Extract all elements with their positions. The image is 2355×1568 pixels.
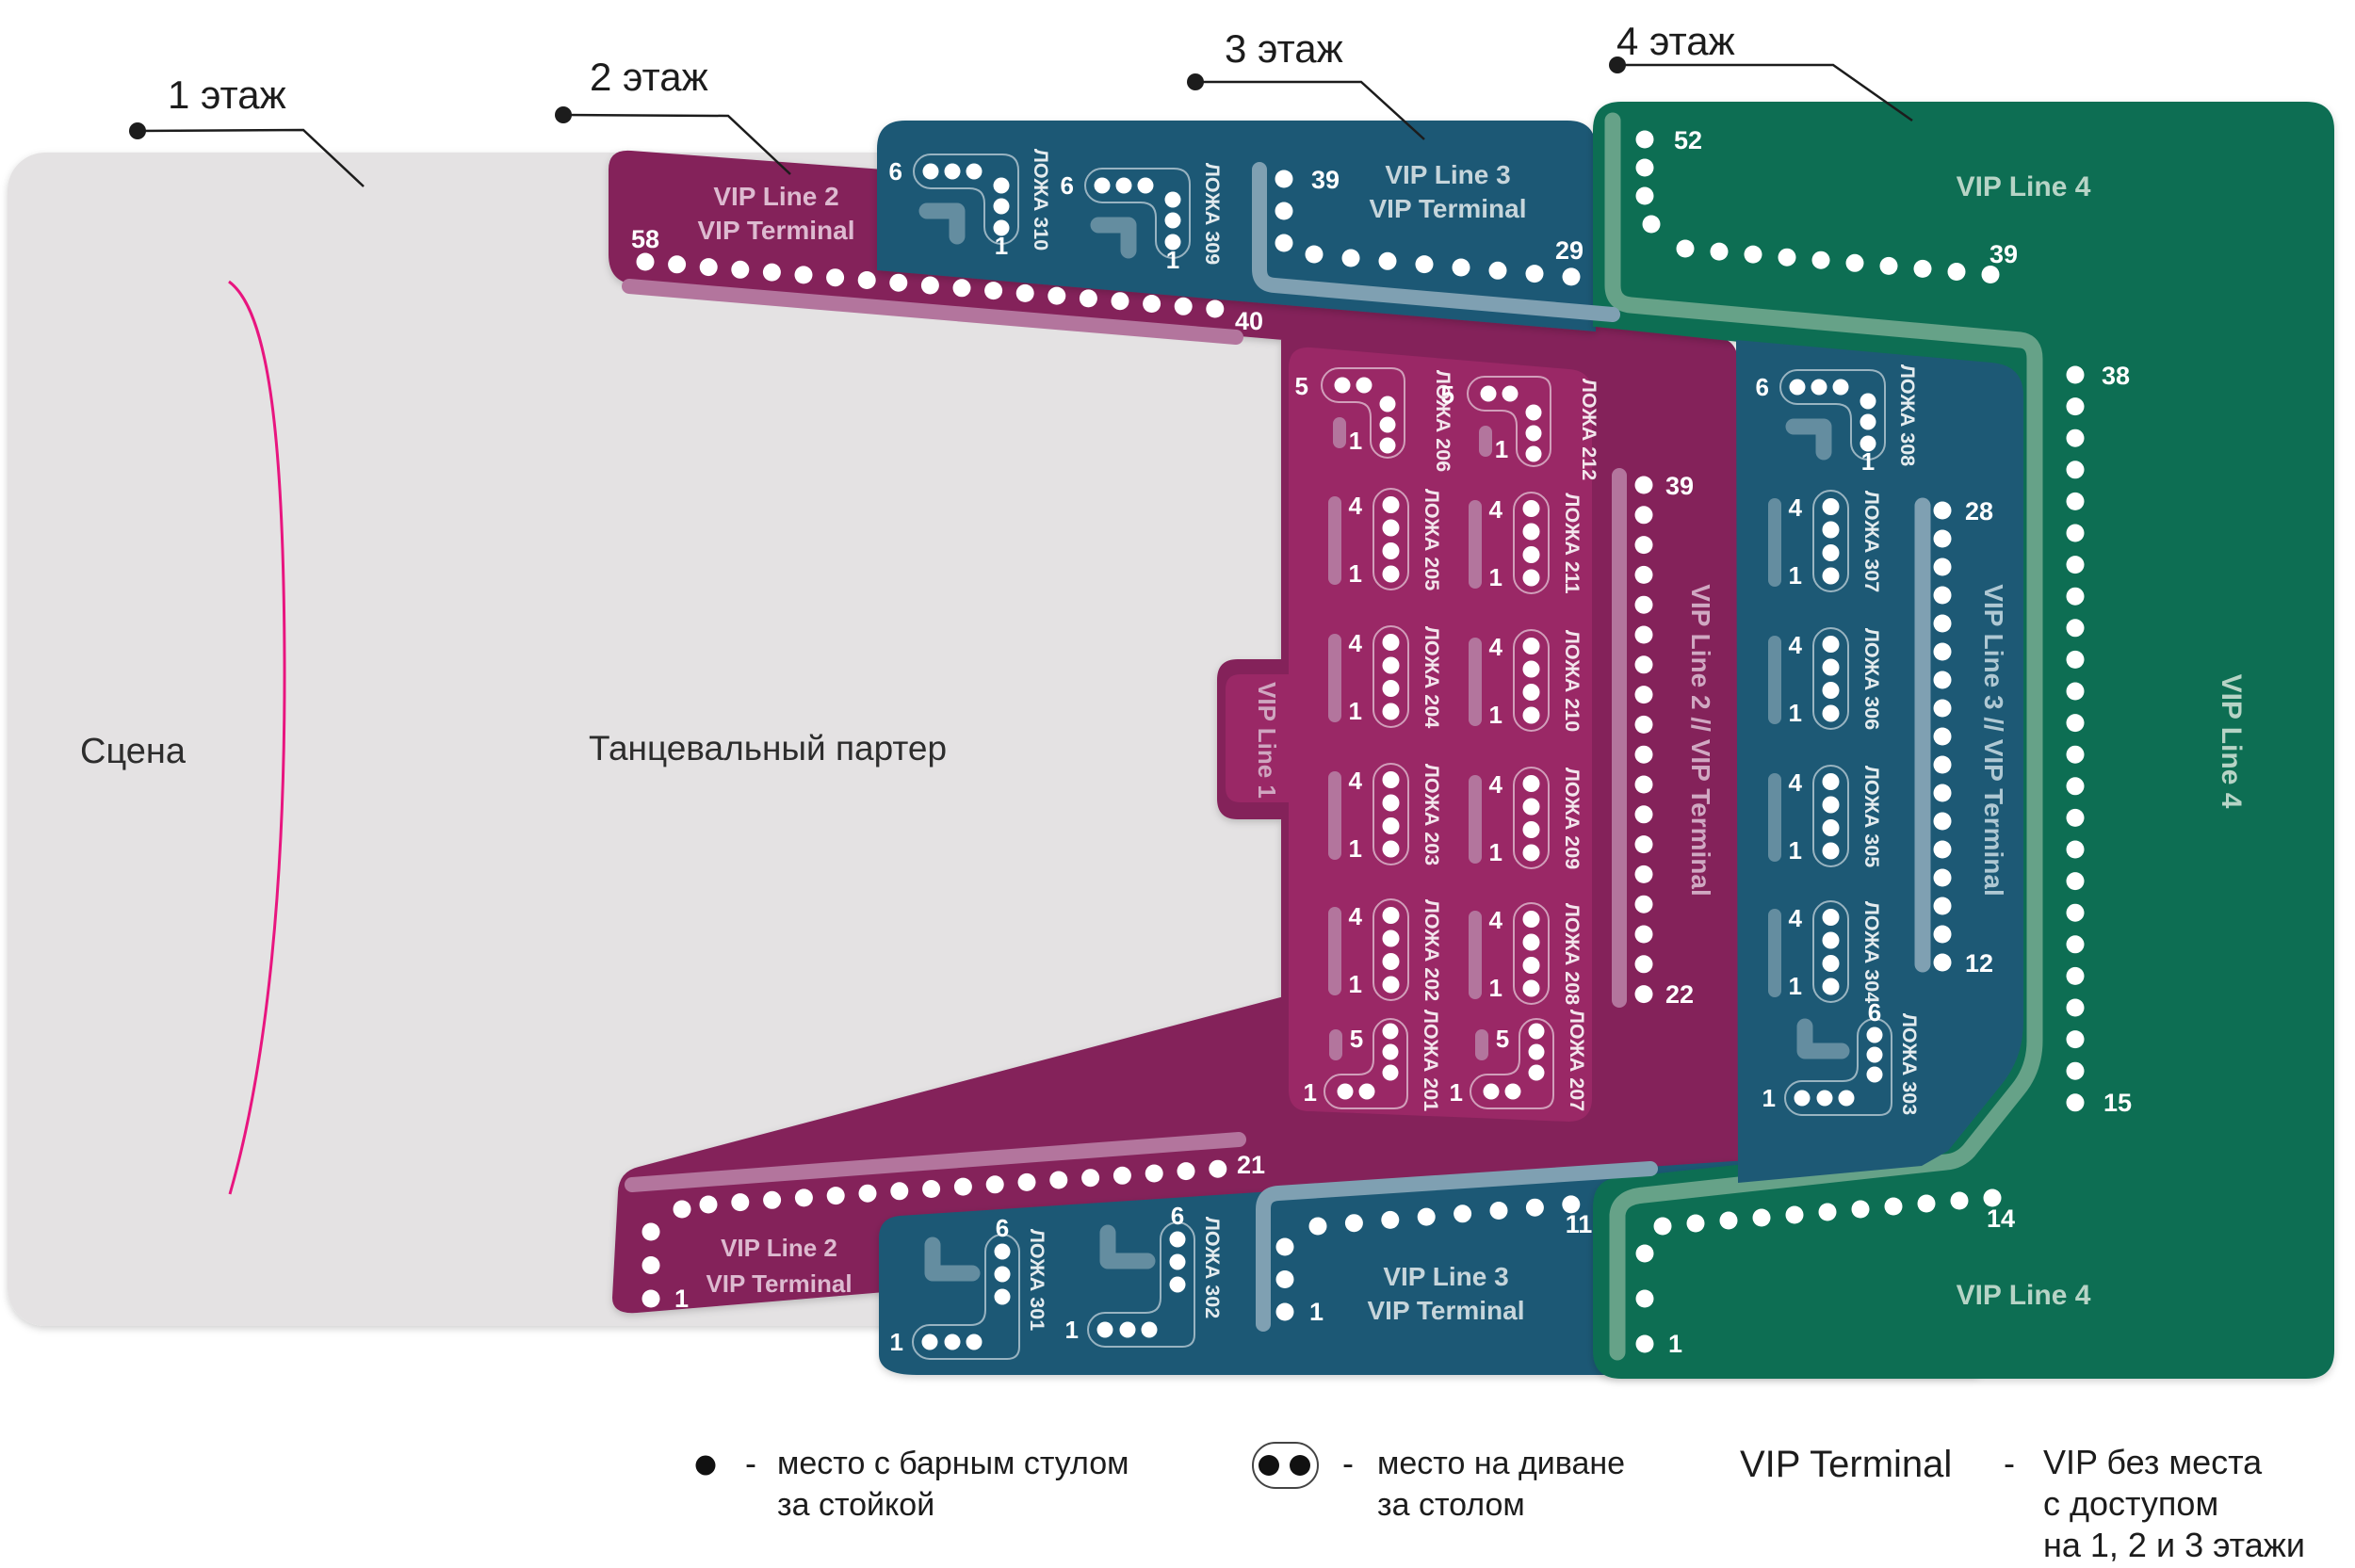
svg-text:за стойкой: за стойкой <box>777 1487 934 1523</box>
svg-text:ЛОЖА 302: ЛОЖА 302 <box>1201 1217 1224 1318</box>
svg-text:ЛОЖА 305: ЛОЖА 305 <box>1860 766 1883 867</box>
svg-text:ЛОЖА 307: ЛОЖА 307 <box>1860 491 1883 592</box>
svg-text:1: 1 <box>1789 561 1802 590</box>
svg-text:ЛОЖА 304: ЛОЖА 304 <box>1860 901 1883 1003</box>
svg-text:3 этаж: 3 этаж <box>1225 26 1343 71</box>
svg-text:6: 6 <box>1061 171 1074 200</box>
svg-text:ЛОЖА 303: ЛОЖА 303 <box>1898 1013 1921 1115</box>
svg-text:6: 6 <box>889 157 902 186</box>
svg-text:VIP Line 3: VIP Line 3 <box>1385 160 1510 189</box>
svg-text:5: 5 <box>1350 1025 1363 1053</box>
svg-text:VIP Line 4: VIP Line 4 <box>1957 171 2091 202</box>
svg-text:4: 4 <box>1489 770 1503 799</box>
svg-text:4: 4 <box>1489 906 1503 934</box>
svg-text:VIP Line 2: VIP Line 2 <box>713 182 838 211</box>
svg-text:5: 5 <box>1441 380 1454 409</box>
svg-text:ЛОЖА 212: ЛОЖА 212 <box>1578 379 1600 480</box>
svg-text:ЛОЖА 201: ЛОЖА 201 <box>1420 1010 1442 1111</box>
svg-text:39: 39 <box>1311 166 1340 194</box>
svg-text:1: 1 <box>1349 427 1362 455</box>
svg-text:за столом: за столом <box>1377 1487 1525 1523</box>
svg-text:39: 39 <box>1665 472 1694 500</box>
svg-text:4: 4 <box>1789 631 1803 659</box>
svg-text:22: 22 <box>1665 980 1694 1009</box>
svg-text:4: 4 <box>1489 495 1503 524</box>
svg-text:4: 4 <box>1489 633 1503 661</box>
svg-text:15: 15 <box>2103 1089 2132 1117</box>
svg-text:1: 1 <box>1489 701 1502 729</box>
svg-text:6: 6 <box>1756 373 1769 401</box>
svg-text:5: 5 <box>1295 372 1308 400</box>
svg-text:6: 6 <box>996 1214 1009 1242</box>
svg-text:Танцевальный партер: Танцевальный партер <box>589 729 947 768</box>
svg-text:-: - <box>1342 1444 1354 1482</box>
svg-text:21: 21 <box>1237 1151 1265 1179</box>
svg-text:1: 1 <box>1065 1316 1079 1344</box>
svg-text:1: 1 <box>1861 447 1875 476</box>
svg-text:VIP Line 3: VIP Line 3 <box>1383 1262 1508 1291</box>
svg-text:1: 1 <box>674 1285 689 1313</box>
svg-text:1: 1 <box>1349 970 1362 998</box>
svg-text:ЛОЖА 308: ЛОЖА 308 <box>1896 364 1919 466</box>
svg-text:ЛОЖА 310: ЛОЖА 310 <box>1030 149 1052 251</box>
svg-text:1: 1 <box>1489 838 1502 866</box>
svg-text:ЛОЖА 301: ЛОЖА 301 <box>1026 1229 1048 1331</box>
svg-text:ЛОЖА 207: ЛОЖА 207 <box>1566 1010 1588 1111</box>
svg-text:VIP Line 2 // VIP Terminal: VIP Line 2 // VIP Terminal <box>1686 584 1715 896</box>
svg-text:1: 1 <box>1349 834 1362 863</box>
svg-text:VIP Terminal: VIP Terminal <box>1367 1296 1524 1325</box>
svg-text:VIP Line 2: VIP Line 2 <box>721 1234 837 1262</box>
svg-text:11: 11 <box>1566 1210 1593 1238</box>
svg-text:VIP Line 3 // VIP Terminal: VIP Line 3 // VIP Terminal <box>1979 584 2008 896</box>
svg-text:1: 1 <box>1762 1084 1776 1112</box>
svg-text:1: 1 <box>1789 699 1802 727</box>
svg-text:1: 1 <box>1489 563 1502 591</box>
svg-text:1: 1 <box>1789 972 1802 1000</box>
svg-text:52: 52 <box>1674 126 1702 154</box>
svg-text:14: 14 <box>1987 1204 2015 1233</box>
svg-text:ЛОЖА 208: ЛОЖА 208 <box>1561 903 1584 1005</box>
svg-text:ЛОЖА 203: ЛОЖА 203 <box>1421 764 1443 865</box>
svg-text:ЛОЖА 309: ЛОЖА 309 <box>1201 163 1224 265</box>
svg-text:ЛОЖА 205: ЛОЖА 205 <box>1421 489 1443 590</box>
svg-text:4: 4 <box>1349 767 1363 795</box>
svg-text:38: 38 <box>2102 362 2130 390</box>
svg-text:VIP Line 4: VIP Line 4 <box>2216 674 2247 809</box>
svg-text:4: 4 <box>1349 902 1363 930</box>
svg-text:VIP Line 1: VIP Line 1 <box>1253 682 1281 799</box>
svg-text:2 этаж: 2 этаж <box>590 55 708 99</box>
svg-text:VIP Terminal: VIP Terminal <box>706 1269 852 1298</box>
svg-text:VIP Line 4: VIP Line 4 <box>1957 1280 2091 1311</box>
svg-text:1: 1 <box>1166 246 1179 274</box>
svg-text:ЛОЖА 210: ЛОЖА 210 <box>1561 630 1584 732</box>
svg-text:4: 4 <box>1789 493 1803 522</box>
svg-text:место на диване: место на диване <box>1377 1446 1625 1481</box>
svg-text:Сцена: Сцена <box>80 732 187 771</box>
svg-text:VIP Terminal: VIP Terminal <box>697 216 854 245</box>
svg-text:-: - <box>2004 1444 2015 1482</box>
svg-text:1: 1 <box>1495 435 1508 463</box>
svg-text:6: 6 <box>1171 1202 1184 1230</box>
svg-text:с доступом: с доступом <box>2043 1484 2218 1523</box>
svg-text:1: 1 <box>1349 697 1362 725</box>
svg-text:VIP Terminal: VIP Terminal <box>1369 194 1526 223</box>
svg-text:4 этаж: 4 этаж <box>1616 19 1735 63</box>
svg-text:ЛОЖА 209: ЛОЖА 209 <box>1561 768 1584 869</box>
svg-text:1: 1 <box>1349 559 1362 588</box>
svg-text:4: 4 <box>1789 904 1803 932</box>
svg-text:1: 1 <box>1489 974 1502 1002</box>
svg-text:5: 5 <box>1496 1025 1509 1053</box>
svg-text:на 1, 2 и 3 этажи: на 1, 2 и 3 этажи <box>2043 1526 2305 1564</box>
svg-text:1: 1 <box>1304 1078 1317 1107</box>
svg-text:ЛОЖА 204: ЛОЖА 204 <box>1421 626 1443 728</box>
svg-text:ЛОЖА 211: ЛОЖА 211 <box>1561 493 1584 593</box>
svg-text:ЛОЖА 202: ЛОЖА 202 <box>1421 899 1443 1001</box>
svg-text:1: 1 <box>1789 836 1802 865</box>
svg-text:-: - <box>745 1444 756 1482</box>
svg-text:29: 29 <box>1555 236 1584 265</box>
svg-text:VIP без места: VIP без места <box>2043 1443 2263 1481</box>
svg-text:40: 40 <box>1235 307 1263 335</box>
svg-text:VIP Terminal: VIP Terminal <box>1740 1444 1952 1485</box>
svg-text:ЛОЖА 306: ЛОЖА 306 <box>1860 628 1883 730</box>
svg-text:58: 58 <box>631 225 659 253</box>
svg-text:1: 1 <box>995 232 1008 260</box>
svg-text:1 этаж: 1 этаж <box>168 73 286 117</box>
svg-text:28: 28 <box>1965 497 1993 525</box>
svg-text:4: 4 <box>1789 768 1803 797</box>
svg-text:4: 4 <box>1349 492 1363 520</box>
svg-text:1: 1 <box>1309 1298 1324 1326</box>
svg-text:4: 4 <box>1349 629 1363 657</box>
svg-text:1: 1 <box>1668 1330 1682 1358</box>
svg-text:1: 1 <box>1450 1078 1463 1107</box>
svg-text:1: 1 <box>890 1328 903 1356</box>
svg-text:39: 39 <box>1990 240 2018 268</box>
svg-text:место с барным стулом: место с барным стулом <box>777 1446 1129 1481</box>
svg-text:12: 12 <box>1965 949 1993 978</box>
